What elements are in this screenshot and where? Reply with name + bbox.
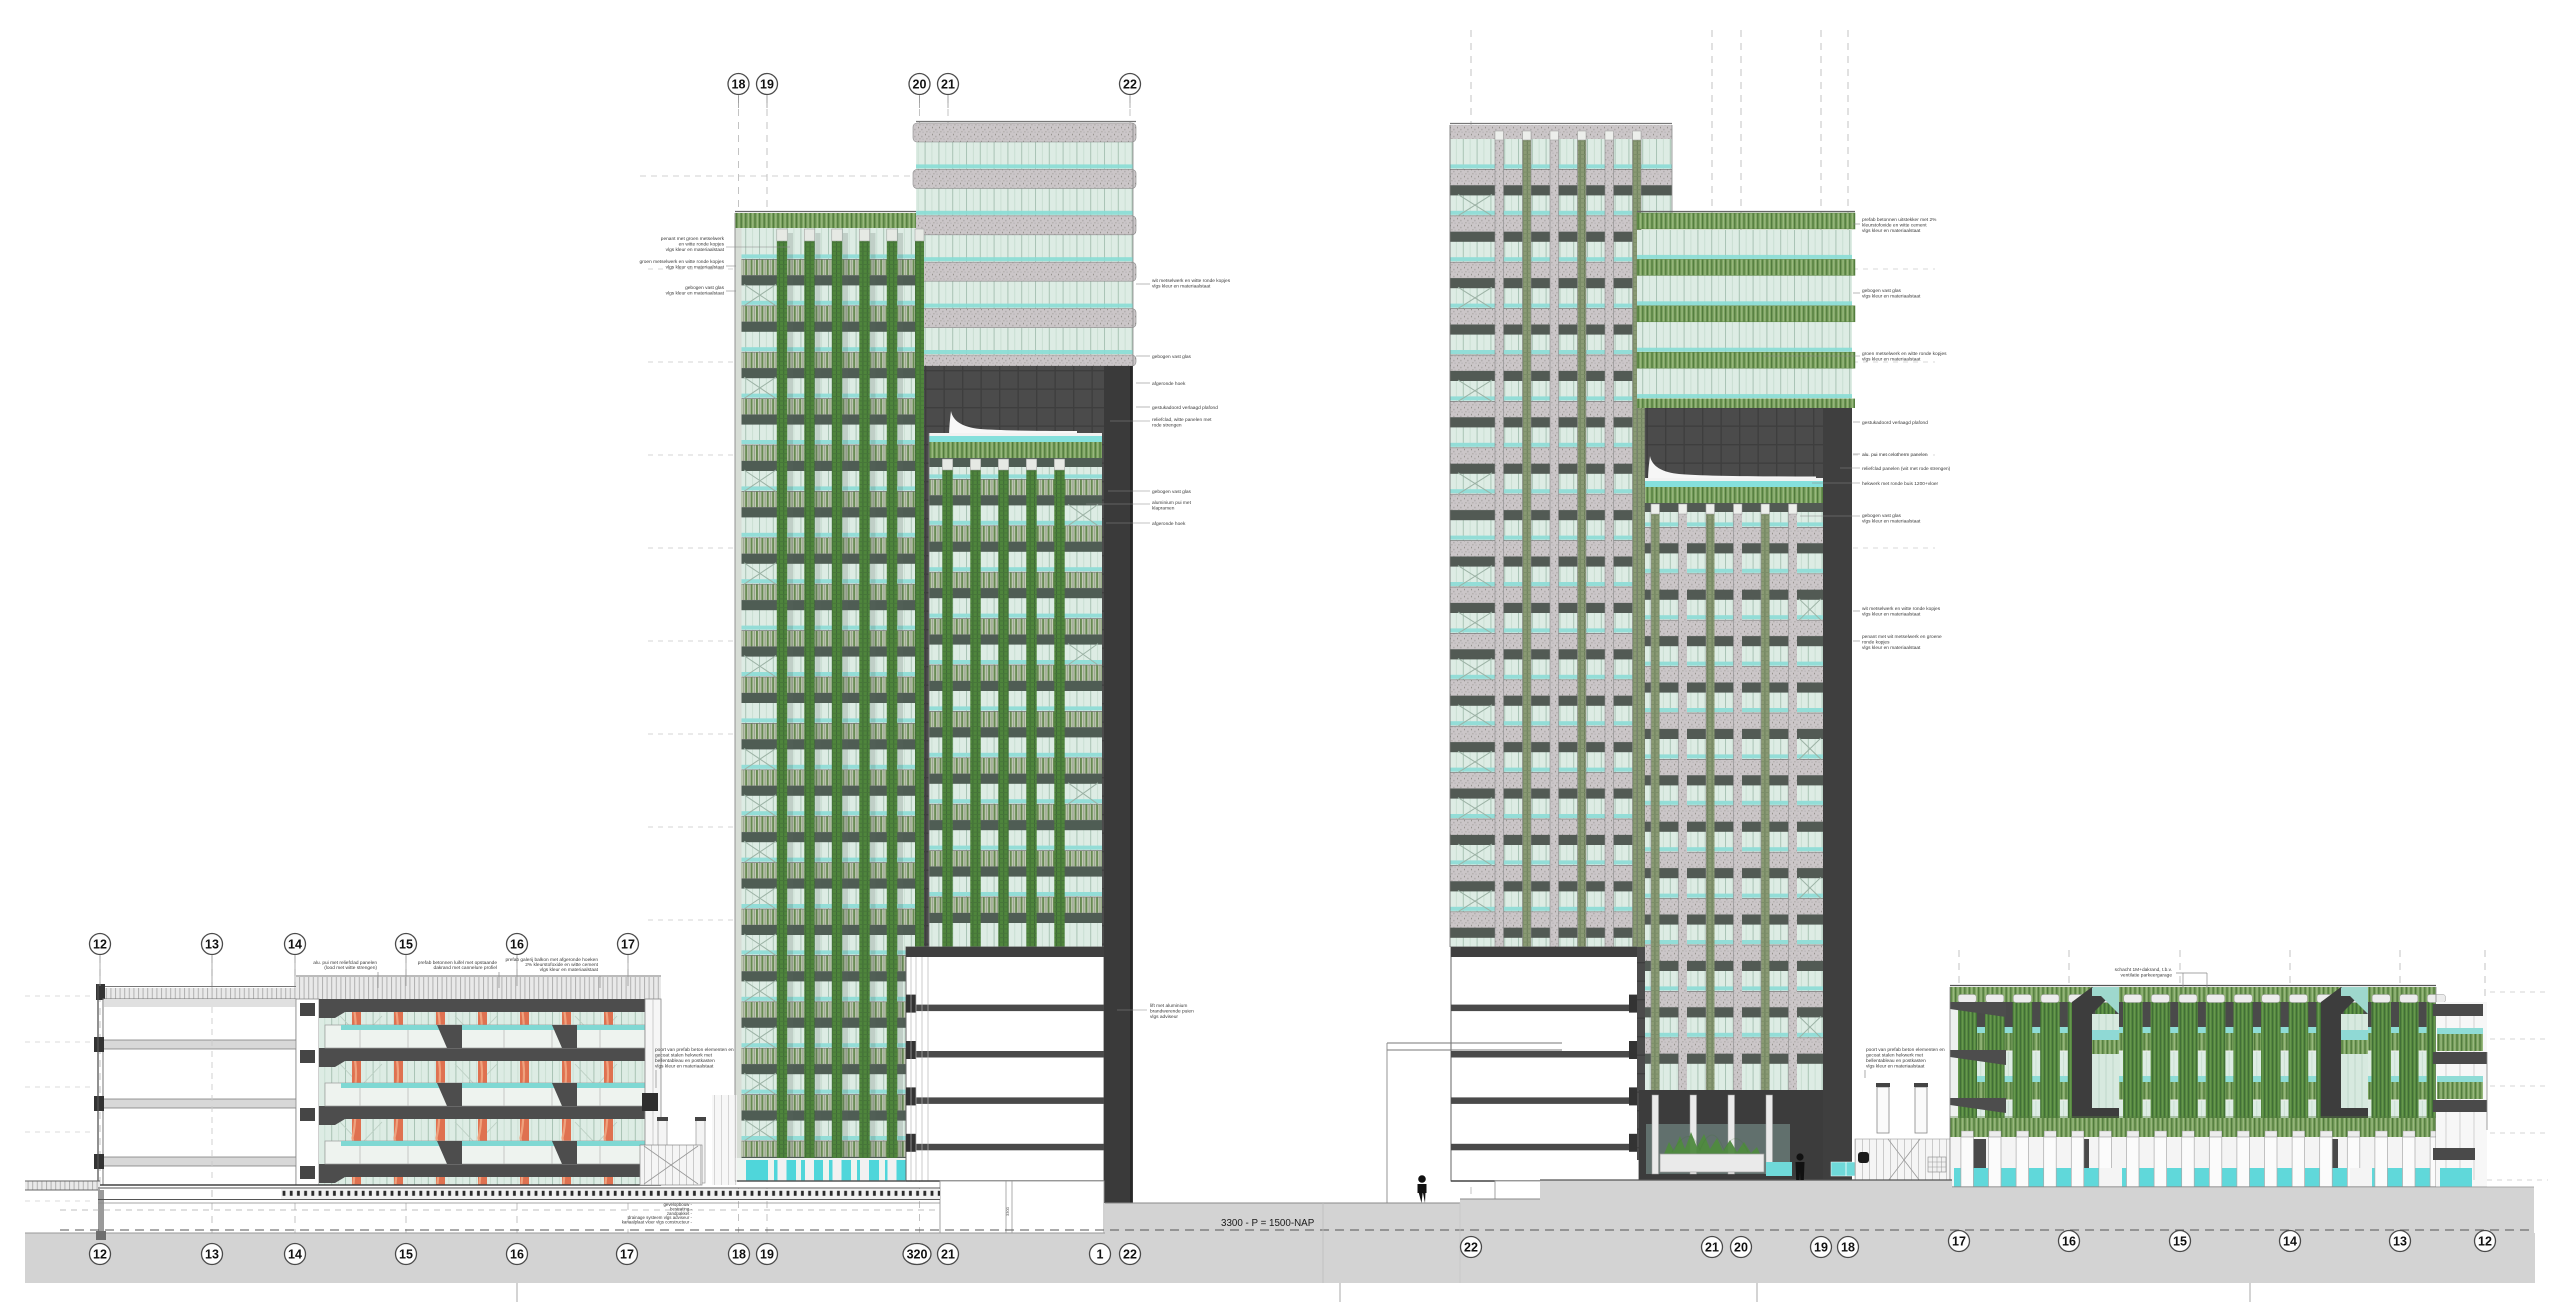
svg-text:20: 20	[1734, 1241, 1748, 1255]
svg-text:22: 22	[1123, 78, 1137, 92]
svg-text:hekwerk met ronde buis 1200+vl: hekwerk met ronde buis 1200+vloer	[1862, 481, 1939, 487]
svg-text:vlgs kleur en materiaalstaat: vlgs kleur en materiaalstaat	[1862, 228, 1921, 234]
svg-text:gebogen vast glas: gebogen vast glas	[1862, 288, 1902, 294]
svg-text:17: 17	[621, 938, 635, 952]
svg-text:ventilatie parkeergarage: ventilatie parkeergarage	[2121, 973, 2173, 979]
svg-text:19: 19	[1814, 1241, 1828, 1255]
svg-text:aluminium pui met: aluminium pui met	[1152, 500, 1192, 506]
svg-text:12: 12	[93, 1248, 107, 1262]
svg-text:1: 1	[1097, 1248, 1104, 1262]
svg-text:14: 14	[2283, 1235, 2297, 1249]
svg-text:en witte ronde kopjes: en witte ronde kopjes	[679, 241, 725, 247]
svg-text:320: 320	[907, 1248, 928, 1262]
svg-text:kleurstofoxide en witte cement: kleurstofoxide en witte cement	[1862, 222, 1927, 228]
svg-text:gestukadoord verlaagd plafond: gestukadoord verlaagd plafond	[1862, 420, 1928, 426]
svg-text:gecoat stalen hekwerk met: gecoat stalen hekwerk met	[1866, 1053, 1924, 1059]
svg-text:vlgs kleur en materiaalstaat: vlgs kleur en materiaalstaat	[666, 264, 725, 270]
svg-text:reliefclad, witte panelen met: reliefclad, witte panelen met	[1152, 417, 1212, 423]
svg-text:vlgs kleur en materiaalstaat: vlgs kleur en materiaalstaat	[1862, 611, 1921, 617]
svg-text:21: 21	[1705, 1241, 1719, 1255]
svg-text:14: 14	[288, 1248, 302, 1262]
svg-text:vlgs kleur en materiaalstaat: vlgs kleur en materiaalstaat	[540, 967, 599, 973]
svg-text:gebogen vast glas: gebogen vast glas	[685, 285, 725, 291]
svg-text:brandwerende puien: brandwerende puien	[1150, 1008, 1194, 1014]
svg-text:15: 15	[2173, 1235, 2187, 1249]
svg-text:gecoat stalen hekwerk met: gecoat stalen hekwerk met	[655, 1053, 713, 1059]
svg-text:gebogen vast glas: gebogen vast glas	[1862, 513, 1902, 519]
svg-text:kanaalplaat vloer vlgs constru: kanaalplaat vloer vlgs constructeur -	[622, 1220, 693, 1225]
svg-text:vlgs kleur en materiaalstaat: vlgs kleur en materiaalstaat	[1152, 283, 1211, 289]
svg-text:dakrand met cannelure profiel: dakrand met cannelure profiel	[434, 965, 497, 971]
svg-text:vlgs kleur en materiaalstaat: vlgs kleur en materiaalstaat	[655, 1064, 714, 1070]
svg-text:ronde kopjes: ronde kopjes	[1862, 639, 1890, 645]
svg-text:15: 15	[399, 938, 413, 952]
svg-text:17: 17	[620, 1248, 634, 1262]
svg-text:13: 13	[205, 938, 219, 952]
svg-text:22: 22	[1464, 1241, 1478, 1255]
svg-text:wit metselwerk en witte ronde: wit metselwerk en witte ronde kopjes	[1862, 606, 1941, 612]
svg-text:13: 13	[205, 1248, 219, 1262]
svg-text:poort van prefab beton element: poort van prefab beton elementen en	[1866, 1047, 1945, 1053]
svg-text:21: 21	[941, 78, 955, 92]
svg-text:klapramen: klapramen	[1152, 505, 1175, 511]
svg-text:vlgs kleur en materiaalstaat: vlgs kleur en materiaalstaat	[1866, 1064, 1925, 1070]
svg-text:groen metselwerk en witte rond: groen metselwerk en witte ronde kopjes	[1862, 351, 1947, 357]
svg-text:14: 14	[288, 938, 302, 952]
svg-text:gebogen vast glas: gebogen vast glas	[1152, 354, 1192, 360]
svg-text:20: 20	[913, 78, 927, 92]
svg-text:vlgs kleur en materiaalstaat: vlgs kleur en materiaalstaat	[1862, 293, 1921, 299]
svg-text:gestukadoord verlaagd plafond: gestukadoord verlaagd plafond	[1152, 405, 1218, 411]
svg-text:vlgs kleur en materiaalstaat: vlgs kleur en materiaalstaat	[1862, 356, 1921, 362]
svg-text:prefab betonnen uitstekker met: prefab betonnen uitstekker met 2%	[1862, 217, 1937, 223]
svg-text:19: 19	[760, 78, 774, 92]
svg-text:afgeronde hoek: afgeronde hoek	[1152, 381, 1186, 387]
svg-text:groen metselwerk en witte rond: groen metselwerk en witte ronde kopjes	[639, 259, 724, 265]
svg-text:bellentableau en postkasten: bellentableau en postkasten	[1866, 1058, 1926, 1064]
svg-text:afgeronde hoek: afgeronde hoek	[1152, 521, 1186, 527]
svg-text:penant met wit metselwerk en g: penant met wit metselwerk en groene	[1862, 634, 1942, 640]
svg-text:16: 16	[510, 938, 524, 952]
svg-text:15: 15	[399, 1248, 413, 1262]
svg-text:poort van prefab beton element: poort van prefab beton elementen en	[655, 1047, 734, 1053]
svg-text:reliefclad panelen (wit met ro: reliefclad panelen (wit met rode strenge…	[1862, 466, 1951, 472]
svg-text:vlgs kleur en materiaalstaat: vlgs kleur en materiaalstaat	[666, 247, 725, 253]
svg-text:vlgs kleur en materiaalstaat: vlgs kleur en materiaalstaat	[1862, 645, 1921, 651]
svg-text:12: 12	[2478, 1235, 2492, 1249]
svg-text:(lood met witte strengen): (lood met witte strengen)	[324, 965, 377, 971]
svg-text:rode strengen: rode strengen	[1152, 422, 1182, 428]
svg-text:lift met aluminium: lift met aluminium	[1150, 1003, 1187, 1009]
svg-text:16: 16	[2062, 1235, 2076, 1249]
svg-text:22: 22	[1123, 1248, 1137, 1262]
svg-text:bellentableau en postkasten: bellentableau en postkasten	[655, 1058, 715, 1064]
svg-text:vlgs adviseur: vlgs adviseur	[1150, 1014, 1178, 1020]
svg-text:vlgs kleur en materiaalstaat: vlgs kleur en materiaalstaat	[666, 290, 725, 296]
svg-text:gebogen vast glas: gebogen vast glas	[1152, 489, 1192, 495]
svg-text:3300: 3300	[1005, 1206, 1010, 1216]
svg-text:17: 17	[1952, 1235, 1966, 1249]
svg-text:19: 19	[760, 1248, 774, 1262]
svg-text:21: 21	[941, 1248, 955, 1262]
svg-text:vlgs kleur en materiaalstaat: vlgs kleur en materiaalstaat	[1862, 518, 1921, 524]
svg-text:18: 18	[732, 1248, 746, 1262]
svg-text:wit metselwerk en witte ronde: wit metselwerk en witte ronde kopjes	[1152, 278, 1231, 284]
svg-text:schacht 1M+dakrand, t.b.v.: schacht 1M+dakrand, t.b.v.	[2115, 967, 2172, 973]
svg-text:3300 - P = 1500-NAP: 3300 - P = 1500-NAP	[1221, 1218, 1315, 1229]
svg-text:penant met groen metselwerk: penant met groen metselwerk	[661, 236, 725, 242]
svg-text:18: 18	[1841, 1241, 1855, 1255]
svg-text:16: 16	[510, 1248, 524, 1262]
svg-text:12: 12	[93, 938, 107, 952]
svg-text:18: 18	[732, 78, 746, 92]
svg-text:13: 13	[2393, 1235, 2407, 1249]
svg-text:alu. pui met celotherm panelen: alu. pui met celotherm panelen	[1862, 452, 1928, 458]
